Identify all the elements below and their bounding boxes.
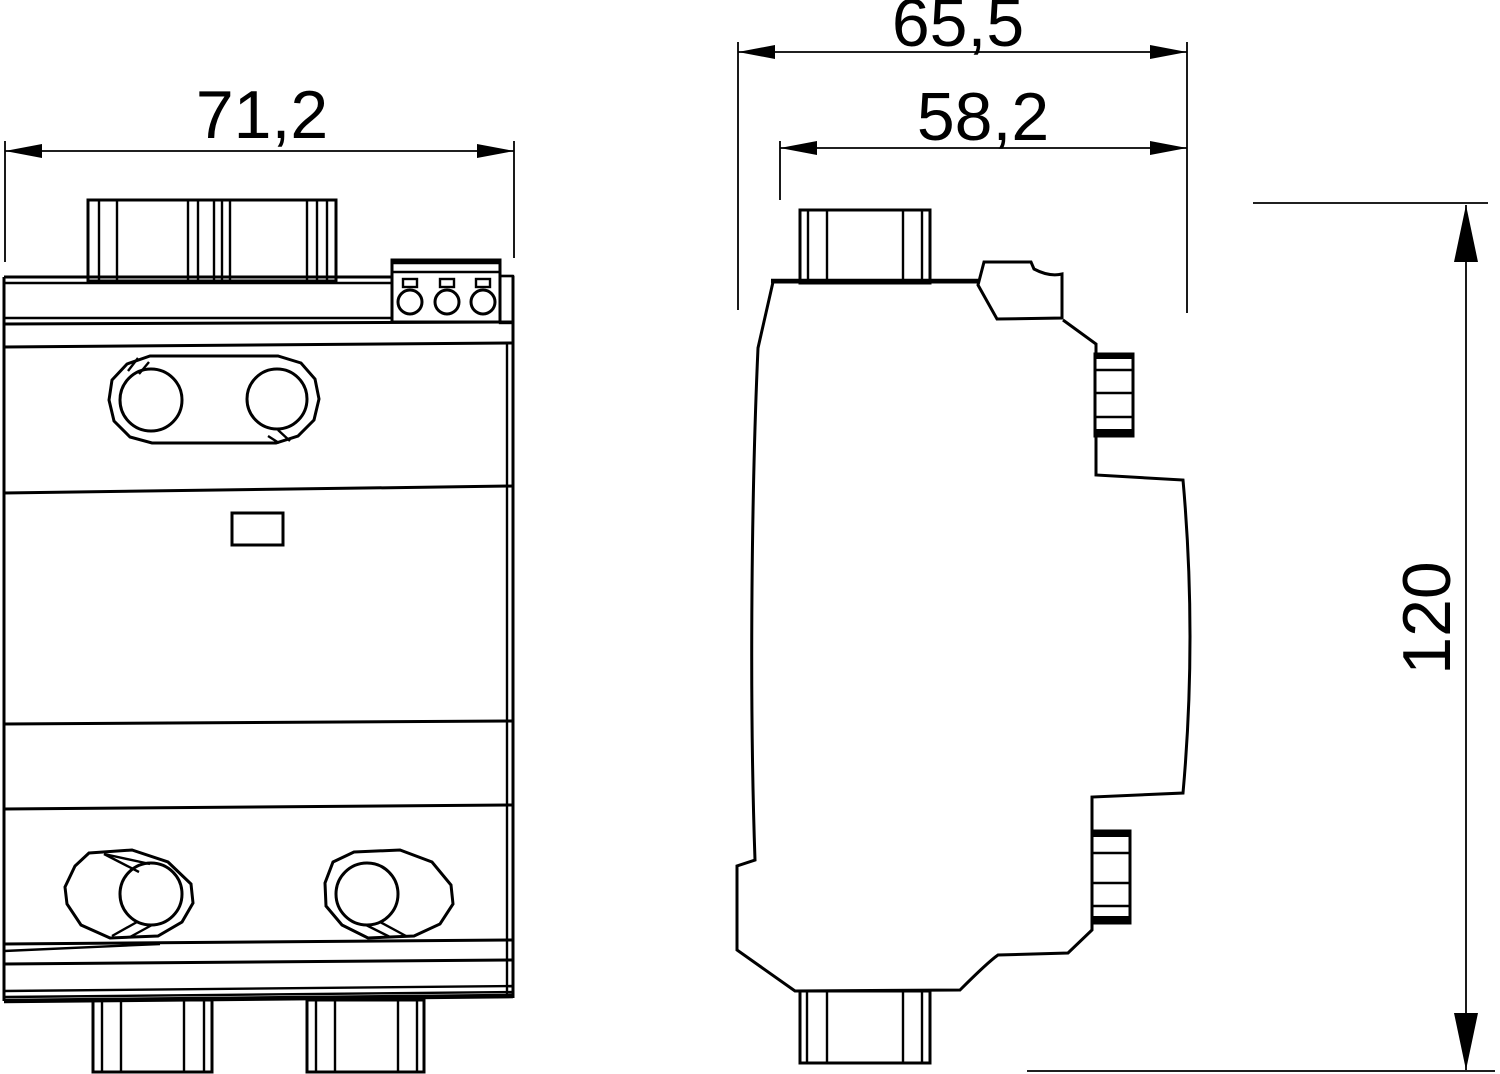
side-housing-back-upper-chamfer bbox=[1063, 320, 1096, 354]
din-clip bbox=[978, 262, 1062, 319]
terminal-screw bbox=[471, 290, 495, 314]
front-bottom-plug-right bbox=[307, 1000, 424, 1072]
ridge-bar bbox=[1092, 916, 1130, 923]
side-view bbox=[737, 210, 1190, 1063]
terminal-slot bbox=[476, 279, 490, 287]
dimension-side-overall-depth: 65,5 bbox=[738, 0, 1187, 313]
terminal-slot bbox=[440, 279, 454, 287]
rail-ridges-lower bbox=[1092, 831, 1130, 923]
plug-outline bbox=[88, 200, 336, 281]
arrowhead-right bbox=[1150, 45, 1187, 59]
front-top-plug bbox=[88, 200, 336, 281]
front-panel-line bbox=[4, 486, 513, 493]
clamp-outline bbox=[325, 850, 453, 938]
ridge-block-outline bbox=[1095, 354, 1133, 436]
terminal-block-shoulder bbox=[500, 276, 513, 323]
front-panel-line bbox=[4, 805, 513, 809]
socket-opening bbox=[120, 369, 182, 431]
front-base-line bbox=[4, 940, 513, 944]
front-base-line bbox=[4, 986, 513, 991]
front-terminal-block bbox=[392, 260, 513, 323]
front-view bbox=[4, 200, 513, 1072]
dimension-overall-height: 120 bbox=[1027, 203, 1495, 1071]
dimension-label-side-housing-depth: 58,2 bbox=[917, 79, 1049, 155]
device-dimension-drawing: 71,2 65,5 58,2 120 bbox=[0, 0, 1500, 1074]
clamp-outline bbox=[65, 850, 193, 938]
clamp-detail-line bbox=[104, 854, 150, 864]
ridge-bar bbox=[1095, 429, 1133, 436]
ridge-block-outline bbox=[1092, 831, 1130, 923]
arrowhead-right bbox=[1150, 141, 1187, 155]
front-upper-socket-cutout bbox=[109, 356, 319, 443]
arrowhead-left bbox=[5, 144, 42, 158]
ridge-bar bbox=[1095, 354, 1133, 359]
dimension-label-front-width: 71,2 bbox=[196, 77, 328, 153]
dimension-front-width: 71,2 bbox=[5, 77, 514, 262]
dimension-label-side-overall-depth: 65,5 bbox=[892, 0, 1024, 61]
plug-outline bbox=[307, 1000, 424, 1072]
front-lower-clamp-right bbox=[325, 850, 453, 938]
front-base-line bbox=[4, 960, 513, 964]
terminal-slot bbox=[403, 279, 417, 287]
side-housing-back-outline bbox=[1092, 436, 1190, 831]
dimension-label-overall-height: 120 bbox=[1389, 561, 1465, 674]
ridge-bar bbox=[1092, 831, 1130, 837]
indicator-window bbox=[232, 513, 283, 545]
dimension-side-housing-depth: 58,2 bbox=[780, 79, 1187, 200]
terminal-screw bbox=[435, 290, 459, 314]
arrowhead-top bbox=[1454, 205, 1478, 262]
arrowhead-left bbox=[780, 141, 817, 155]
arrowhead-bottom bbox=[1454, 1013, 1478, 1070]
front-bottom-plug-left bbox=[93, 1000, 212, 1072]
front-lower-clamp-left bbox=[65, 850, 193, 938]
technical-drawing-canvas: 71,2 65,5 58,2 120 bbox=[0, 0, 1500, 1074]
plug-outline bbox=[800, 210, 930, 283]
side-top-plug bbox=[800, 210, 930, 283]
side-housing-front-outline bbox=[737, 282, 1092, 991]
plug-outline bbox=[800, 991, 930, 1063]
side-bottom-plug bbox=[800, 991, 930, 1063]
rail-ridges-upper bbox=[1095, 354, 1133, 436]
plug-outline bbox=[93, 1000, 212, 1072]
clamp-screw bbox=[120, 863, 182, 925]
socket-opening bbox=[247, 369, 307, 429]
front-panel-line bbox=[4, 721, 513, 724]
terminal-screw bbox=[398, 290, 422, 314]
front-cover-line bbox=[4, 343, 513, 347]
arrowhead-left bbox=[738, 45, 775, 59]
arrowhead-right bbox=[477, 144, 514, 158]
clamp-screw bbox=[336, 863, 398, 925]
